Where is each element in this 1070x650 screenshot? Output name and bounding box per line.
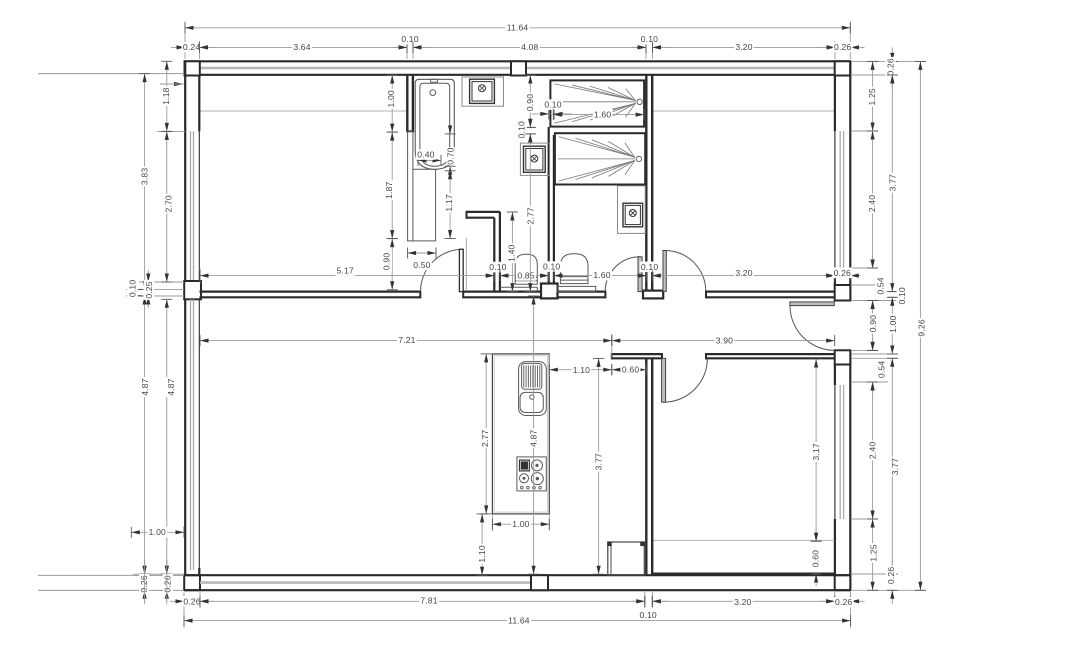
svg-text:0.10: 0.10 bbox=[401, 34, 418, 44]
svg-text:0.10: 0.10 bbox=[543, 262, 560, 272]
svg-text:0.10: 0.10 bbox=[127, 280, 137, 297]
svg-text:2.40: 2.40 bbox=[867, 442, 877, 459]
svg-text:0.26: 0.26 bbox=[163, 575, 173, 592]
svg-text:0.90: 0.90 bbox=[868, 315, 878, 332]
svg-text:7.81: 7.81 bbox=[420, 596, 437, 606]
svg-text:0.10: 0.10 bbox=[544, 100, 561, 110]
svg-text:0.26: 0.26 bbox=[835, 597, 852, 607]
svg-text:3.83: 3.83 bbox=[140, 168, 150, 185]
svg-text:0.85: 0.85 bbox=[517, 270, 534, 280]
svg-text:4.08: 4.08 bbox=[521, 42, 538, 52]
svg-text:5.17: 5.17 bbox=[337, 266, 354, 276]
svg-text:3.77: 3.77 bbox=[888, 174, 898, 191]
svg-text:11.64: 11.64 bbox=[508, 615, 530, 625]
svg-text:3.90: 3.90 bbox=[716, 335, 733, 345]
svg-text:2.70: 2.70 bbox=[164, 195, 174, 212]
svg-text:0.10: 0.10 bbox=[640, 610, 657, 620]
svg-text:4.87: 4.87 bbox=[166, 378, 176, 395]
svg-text:1.00: 1.00 bbox=[512, 519, 529, 529]
svg-text:1.60: 1.60 bbox=[594, 109, 611, 119]
svg-text:3.64: 3.64 bbox=[293, 42, 310, 52]
svg-text:0.26: 0.26 bbox=[886, 58, 896, 75]
svg-text:0.10: 0.10 bbox=[489, 262, 506, 272]
svg-text:0.10: 0.10 bbox=[641, 34, 658, 44]
svg-text:1.00: 1.00 bbox=[149, 527, 166, 537]
svg-text:9.26: 9.26 bbox=[917, 319, 927, 336]
svg-text:2.77: 2.77 bbox=[480, 430, 490, 447]
svg-text:0.25: 0.25 bbox=[144, 281, 154, 298]
svg-text:0.26: 0.26 bbox=[183, 596, 200, 606]
svg-text:0.24: 0.24 bbox=[183, 42, 200, 52]
svg-text:7.21: 7.21 bbox=[398, 335, 415, 345]
svg-text:0.10: 0.10 bbox=[516, 121, 526, 138]
svg-text:0.26: 0.26 bbox=[886, 567, 896, 584]
svg-text:11.64: 11.64 bbox=[507, 23, 529, 33]
svg-text:1.60: 1.60 bbox=[593, 270, 610, 280]
svg-text:1.87: 1.87 bbox=[384, 181, 394, 198]
svg-text:1.25: 1.25 bbox=[869, 544, 879, 561]
svg-text:3.77: 3.77 bbox=[890, 458, 900, 475]
svg-text:3.20: 3.20 bbox=[735, 42, 752, 52]
svg-text:1.00: 1.00 bbox=[888, 315, 898, 332]
svg-text:0.40: 0.40 bbox=[417, 150, 434, 160]
svg-text:0.26: 0.26 bbox=[834, 42, 851, 52]
svg-text:3.77: 3.77 bbox=[594, 453, 604, 470]
svg-text:4.87: 4.87 bbox=[529, 430, 539, 447]
svg-text:1.18: 1.18 bbox=[161, 87, 171, 104]
svg-text:0.90: 0.90 bbox=[382, 253, 392, 270]
svg-text:0.26: 0.26 bbox=[834, 268, 851, 278]
svg-text:1.10: 1.10 bbox=[573, 365, 590, 375]
svg-text:1.00: 1.00 bbox=[386, 90, 396, 107]
svg-text:0.60: 0.60 bbox=[622, 364, 639, 374]
svg-text:0.90: 0.90 bbox=[525, 94, 535, 111]
svg-text:4.87: 4.87 bbox=[140, 378, 150, 395]
svg-text:3.17: 3.17 bbox=[811, 443, 821, 460]
svg-text:0.10: 0.10 bbox=[641, 262, 658, 272]
svg-text:0.54: 0.54 bbox=[876, 277, 886, 294]
svg-text:1.40: 1.40 bbox=[507, 244, 517, 261]
svg-text:0.70: 0.70 bbox=[445, 147, 455, 164]
svg-text:0.10: 0.10 bbox=[897, 287, 907, 304]
svg-text:0.54: 0.54 bbox=[877, 361, 887, 378]
svg-text:3.20: 3.20 bbox=[734, 597, 751, 607]
svg-text:1.10: 1.10 bbox=[477, 545, 487, 562]
svg-text:1.17: 1.17 bbox=[444, 194, 454, 211]
svg-text:0.60: 0.60 bbox=[810, 550, 820, 567]
svg-text:1.25: 1.25 bbox=[867, 88, 877, 105]
svg-text:2.77: 2.77 bbox=[526, 207, 536, 224]
svg-text:0.50: 0.50 bbox=[413, 260, 430, 270]
svg-text:2.40: 2.40 bbox=[867, 195, 877, 212]
svg-text:3.20: 3.20 bbox=[735, 268, 752, 278]
